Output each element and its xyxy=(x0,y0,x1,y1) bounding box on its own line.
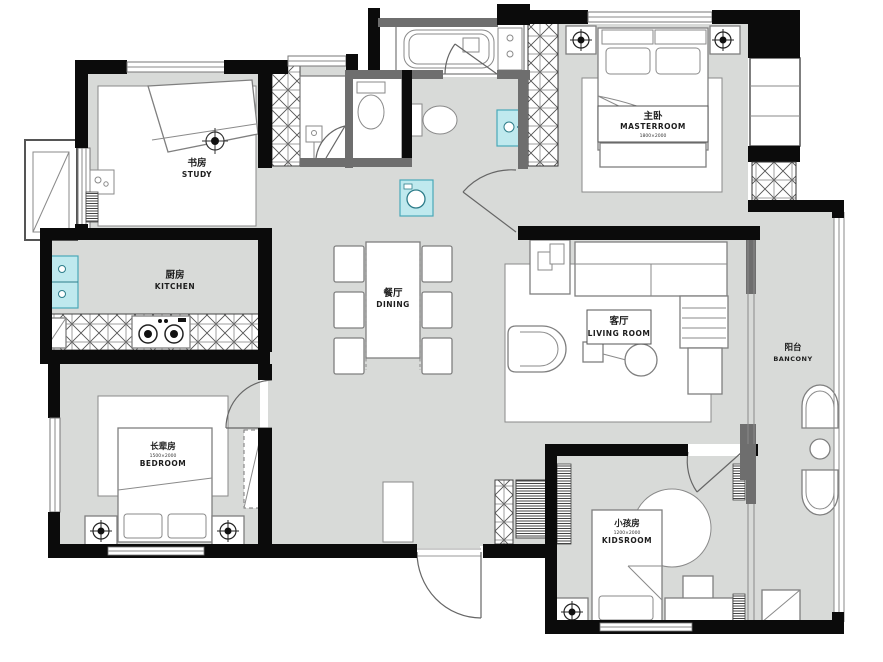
headboard-panel-left xyxy=(602,30,653,44)
kitchen-label-zh: 厨房 xyxy=(165,269,184,281)
floor-plan-canvas: 书房 STUDY xyxy=(0,0,883,662)
dining-label-en: DINING xyxy=(376,300,410,309)
basin-pedestal xyxy=(306,126,322,142)
living-label-en: LIVING ROOM xyxy=(588,329,651,338)
bed-bench xyxy=(600,143,706,167)
dining-chair xyxy=(334,292,364,328)
elder-pillow-right xyxy=(168,514,206,538)
toilet-bowl-icon xyxy=(358,95,384,129)
elder-pillow-left xyxy=(124,514,162,538)
master-label-en: MASTERROOM xyxy=(620,122,686,131)
shoe-cabinet xyxy=(495,480,513,544)
washbasin-small xyxy=(90,170,114,194)
toilet2-tank xyxy=(411,104,422,136)
coffee-table-square xyxy=(583,342,603,362)
entry-bench xyxy=(383,482,413,542)
study-room: 书房 STUDY xyxy=(98,80,258,226)
kitchen-label-en: KITCHEN xyxy=(155,282,195,291)
study-label-zh: 书房 xyxy=(187,157,206,169)
master-label-dim: 1800×2000 xyxy=(640,133,667,139)
living-label-zh: 客厅 xyxy=(608,315,629,327)
radiator xyxy=(86,192,98,222)
balcony-drain xyxy=(810,439,830,459)
entry-door xyxy=(417,552,481,618)
kids-pillow xyxy=(599,596,653,620)
pillow-right xyxy=(656,48,700,74)
dining-chair xyxy=(422,292,452,328)
master-label-zh: 主卧 xyxy=(643,110,663,122)
bath-shelf xyxy=(498,28,522,70)
chaise xyxy=(680,296,728,348)
balcony-tub-bottom xyxy=(802,470,838,515)
elder-label-en: BEDROOM xyxy=(140,459,187,468)
dining-chair xyxy=(422,246,452,282)
bay-window xyxy=(750,58,800,146)
hall-wardrobe-cabinet xyxy=(272,66,300,166)
dining-chair xyxy=(422,338,452,374)
side-table-right xyxy=(688,348,722,394)
dining-area: 餐厅 DINING xyxy=(334,242,452,374)
pillow-left xyxy=(606,48,650,74)
elder-label-zh: 长辈房 xyxy=(150,441,176,452)
toilet-tank xyxy=(357,82,385,93)
shower-mixer xyxy=(463,38,479,52)
balcony-label-en: BANCONY xyxy=(773,355,812,363)
kids-label-en: KIDSROOM xyxy=(602,536,652,545)
kids-label-zh: 小孩房 xyxy=(613,518,640,529)
kids-wall-hatch xyxy=(557,464,571,544)
balcony-label-zh: 阳台 xyxy=(784,342,802,353)
shower-room xyxy=(300,76,347,162)
headboard-panel-right xyxy=(655,30,706,44)
floor-plan-drawing: 书房 STUDY xyxy=(0,0,883,662)
dining-chair xyxy=(334,246,364,282)
dining-label-zh: 餐厅 xyxy=(382,287,403,299)
dining-chair xyxy=(334,338,364,374)
master-wardrobe xyxy=(528,22,558,166)
study-label-en: STUDY xyxy=(182,170,212,179)
toilet2-bowl-icon xyxy=(423,106,457,134)
armchair xyxy=(508,326,566,372)
living-room: 客厅 LIVING ROOM xyxy=(505,240,728,422)
coffee-table-round xyxy=(625,344,657,376)
kids-window-hatch-bottom xyxy=(733,594,745,624)
